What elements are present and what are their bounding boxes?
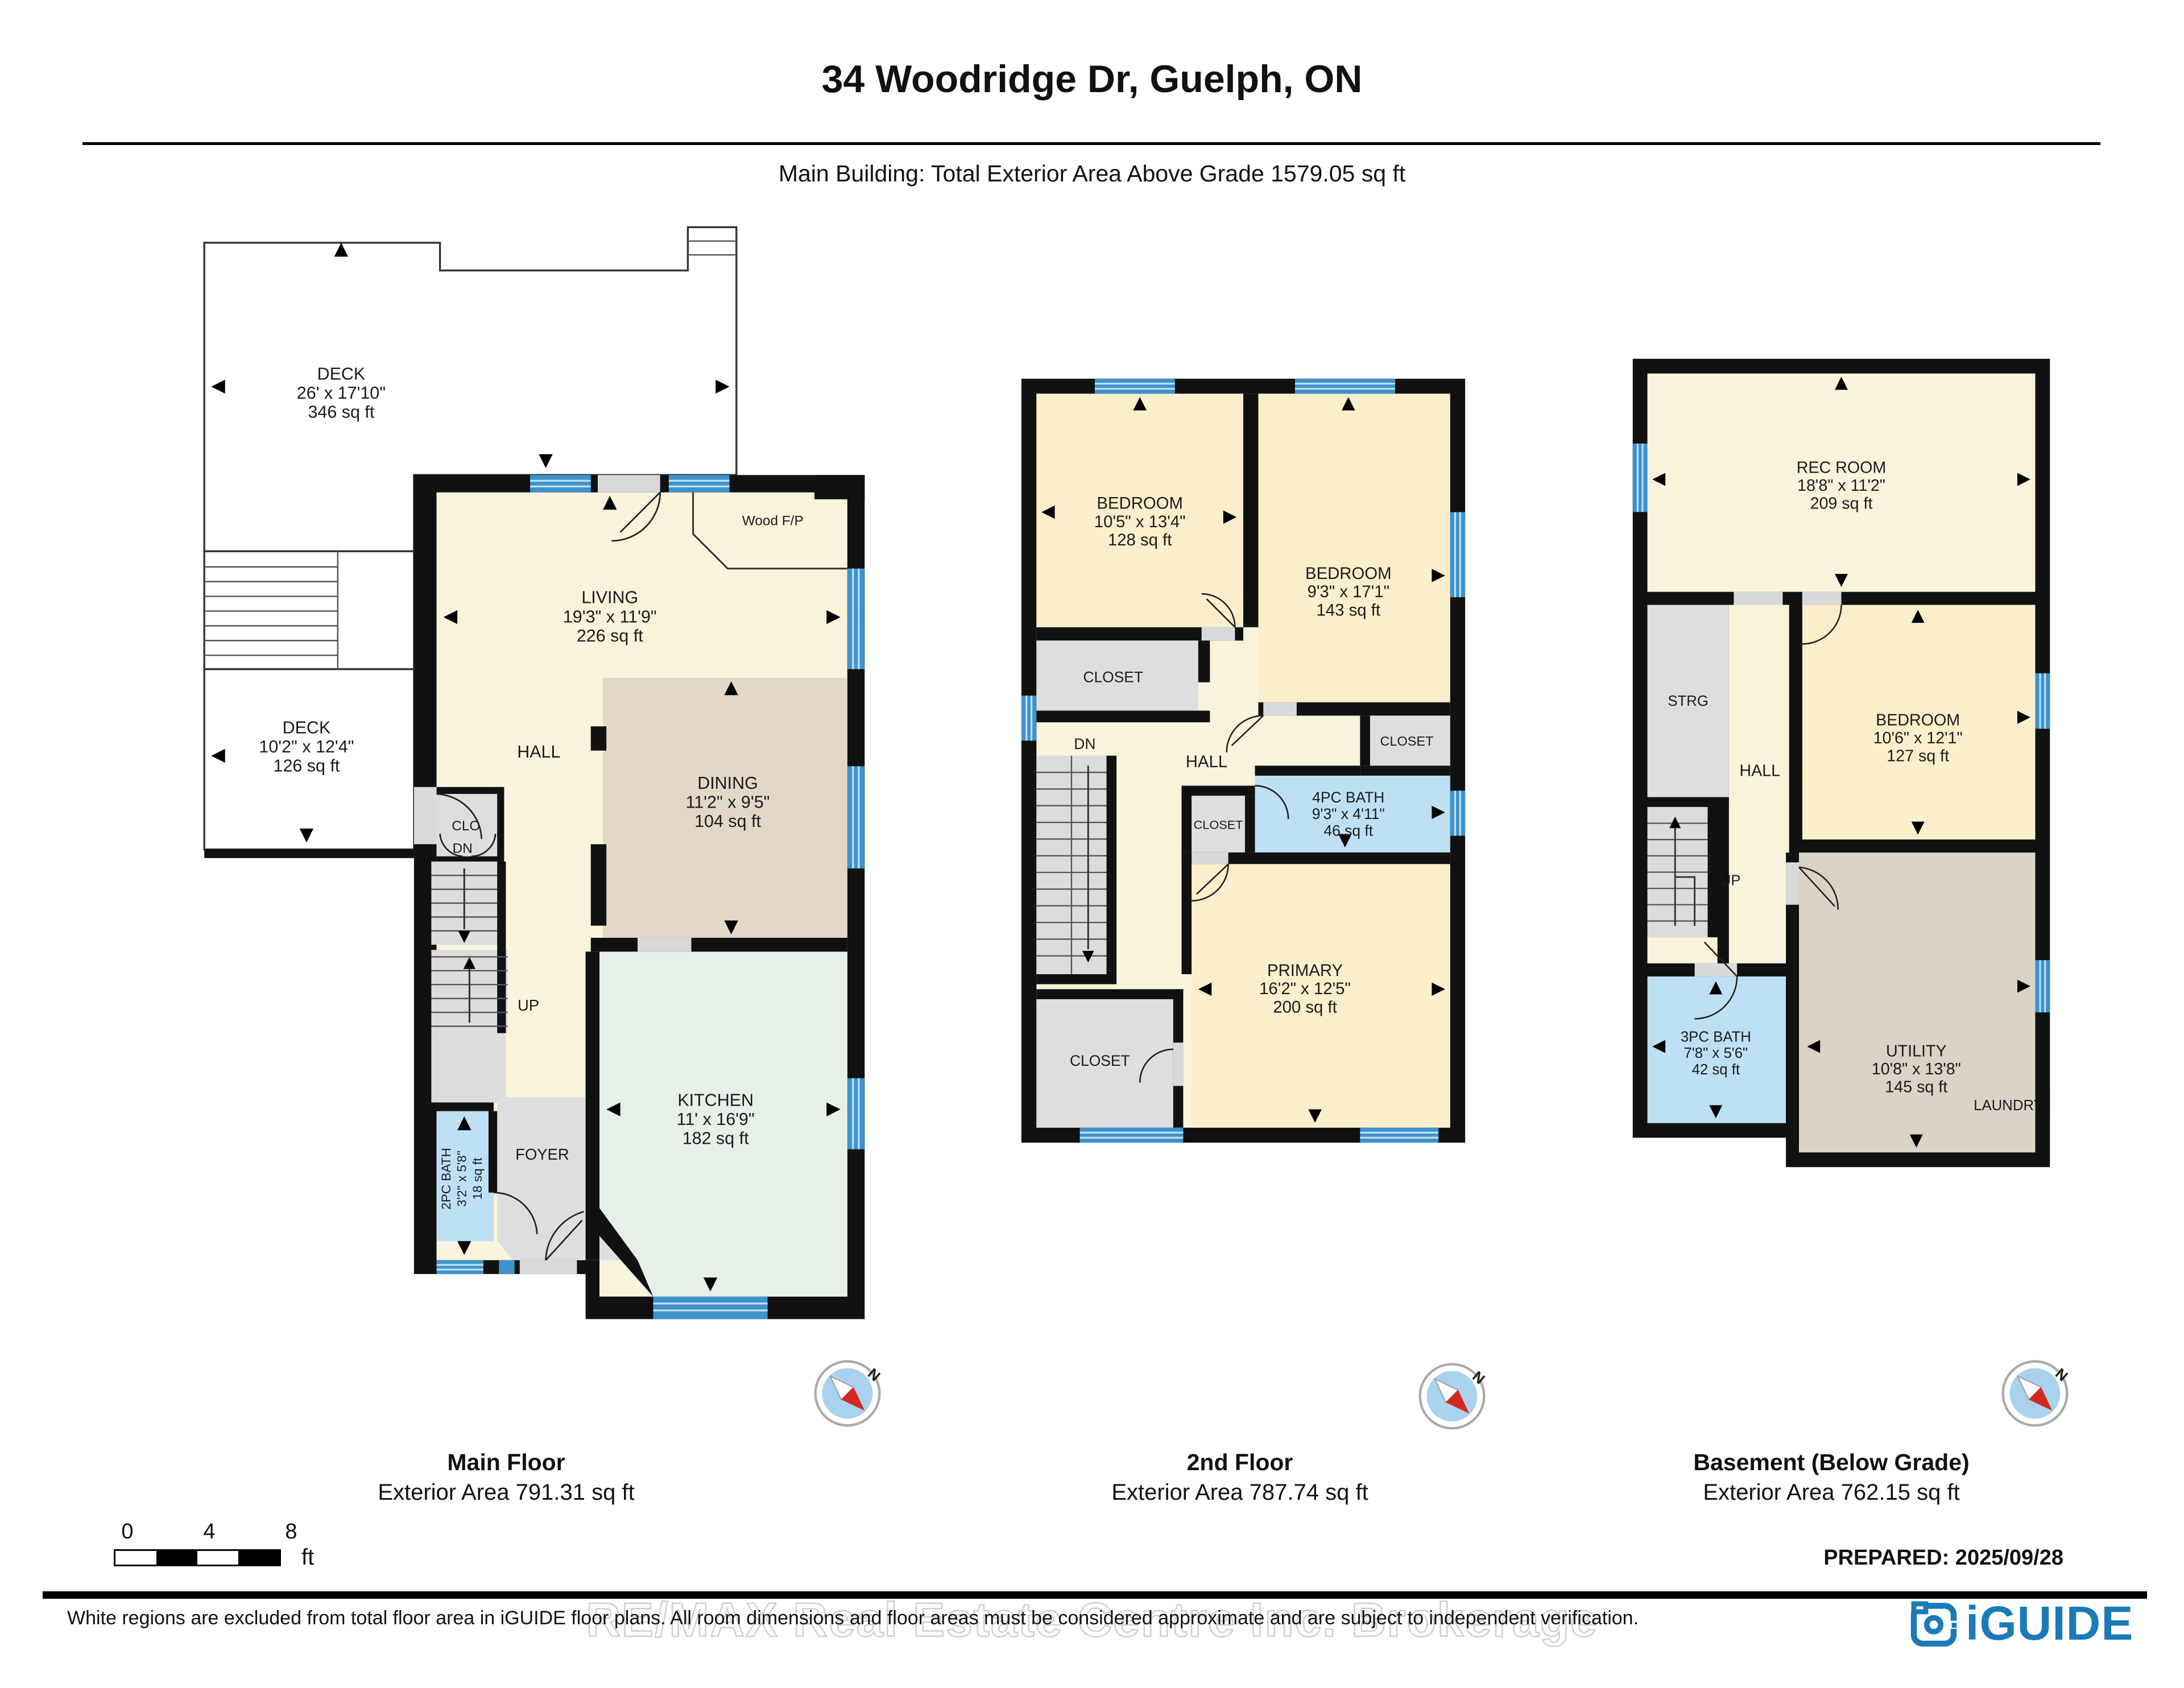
room-dims: 3'2" x 5'8" <box>454 1151 469 1207</box>
room-area: 128 sq ft <box>1108 531 1172 549</box>
scale-bar: 0 4 8 ft <box>114 1520 281 1566</box>
room-label: BEDROOM <box>1305 564 1391 583</box>
room-area: 127 sq ft <box>1887 747 1949 766</box>
room-dims: 11' x 16'9" <box>677 1110 755 1129</box>
room-area: 346 sq ft <box>308 403 374 422</box>
basement-area: Exterior Area 762.15 sq ft <box>1703 1480 1959 1505</box>
scale-unit: ft <box>301 1545 314 1570</box>
scale-tick-0: 0 <box>121 1520 133 1544</box>
iguide-logo-text: iGUIDE <box>1966 1596 2133 1651</box>
room-label: DN <box>453 841 473 857</box>
room-dims: 9'3" x 4'11" <box>1312 805 1385 822</box>
compass-second-floor: N <box>1415 1359 1489 1433</box>
hall-area <box>1729 605 1789 963</box>
room-area: 104 sq ft <box>694 812 761 831</box>
room-label: 2PC BATH <box>439 1148 453 1210</box>
main-floor-label: Main Floor <box>447 1449 565 1476</box>
room-dims: 11'2" x 9'5" <box>686 792 770 812</box>
compass-basement: N <box>1998 1356 2072 1430</box>
room-label: UP <box>518 996 539 1014</box>
room-dims: 10'8" x 13'8" <box>1872 1060 1961 1078</box>
compass-main-floor: N <box>810 1356 884 1430</box>
room-label: CLOSET <box>1194 818 1243 832</box>
second-floor-area: Exterior Area 787.74 sq ft <box>1111 1480 1368 1505</box>
iguide-camera-icon <box>1910 1600 1958 1648</box>
room-area: 209 sq ft <box>1810 495 1873 513</box>
scale-bar-segments <box>114 1549 281 1566</box>
room-label: DN <box>1074 735 1095 752</box>
floorplan-page: { "header": { "title": "34 Woodridge Dr,… <box>0 0 2184 1688</box>
room-label: CLOSET <box>1083 669 1143 686</box>
room-dims: 10'5" x 13'4" <box>1094 512 1186 531</box>
basement-plan: REC ROOM 18'8" x 11'2" 209 sq ft STRG HA… <box>1629 355 2053 1170</box>
footer-disclaimer: White regions are excluded from total fl… <box>67 1607 1639 1629</box>
room-label: DECK <box>317 365 366 384</box>
room-label: DINING <box>697 773 758 793</box>
room-dims: 16'2" x 12'5" <box>1259 979 1351 998</box>
room-dims: 26' x 17'10" <box>297 383 386 403</box>
page-title: 34 Woodridge Dr, Guelph, ON <box>822 57 1363 101</box>
room-label: CLOSET <box>1070 1052 1130 1069</box>
room-label: CLOSET <box>1380 734 1434 748</box>
room-label: 3PC BATH <box>1681 1029 1751 1045</box>
title-divider <box>82 142 2100 145</box>
room-area: 226 sq ft <box>577 626 643 646</box>
room-label: 4PC BATH <box>1312 789 1384 806</box>
room-label: HALL <box>1739 762 1780 780</box>
room-label: LAUNDRY <box>1974 1098 2044 1114</box>
second-floor-label: 2nd Floor <box>1187 1449 1293 1476</box>
room-area: 143 sq ft <box>1317 601 1380 619</box>
room-label: PRIMARY <box>1267 961 1343 980</box>
room-label: HALL <box>517 742 560 762</box>
room-area: 46 sq ft <box>1324 822 1374 839</box>
room-label: UP <box>1720 872 1741 888</box>
room-dims: 7'8" x 5'6" <box>1684 1045 1748 1061</box>
scale-tick-8: 8 <box>285 1520 297 1544</box>
room-area: 182 sq ft <box>682 1129 749 1148</box>
room-label: LIVING <box>581 588 638 607</box>
room-label: DECK <box>283 718 331 737</box>
main-floor-area: Exterior Area 791.31 sq ft <box>378 1480 634 1505</box>
second-floor-plan: BEDROOM 10'5" x 13'4" 128 sq ft BEDROOM … <box>1018 375 1469 1146</box>
room-label: HALL <box>1186 752 1227 771</box>
main-floor-plan: DECK 26' x 17'10" 346 sq ft DECK 10'2" x… <box>199 222 927 1331</box>
room-dims: 18'8" x 11'2" <box>1797 477 1885 495</box>
room-area: 145 sq ft <box>1885 1078 1947 1096</box>
room-dims: 9'3" x 17'1" <box>1308 582 1389 601</box>
room-area: 42 sq ft <box>1692 1062 1740 1078</box>
room-label: BEDROOM <box>1876 711 1960 730</box>
room-label: FOYER <box>515 1145 569 1163</box>
room-area: 200 sq ft <box>1273 998 1337 1016</box>
iguide-logo: iGUIDE <box>1910 1596 2133 1651</box>
room-label: KITCHEN <box>677 1091 754 1110</box>
room-area: 126 sq ft <box>274 756 340 775</box>
room-label: UTILITY <box>1886 1042 1947 1060</box>
bedroom-right-area <box>1258 394 1450 702</box>
room-label: Wood F/P <box>742 514 804 529</box>
room-label: BEDROOM <box>1097 494 1182 513</box>
page-subtitle: Main Building: Total Exterior Area Above… <box>779 160 1405 187</box>
room-area: 18 sq ft <box>470 1157 485 1200</box>
scale-tick-4: 4 <box>203 1520 215 1544</box>
room-label: REC ROOM <box>1797 458 1887 477</box>
room-label: CLO <box>452 818 480 834</box>
prepared-date: PREPARED: 2025/09/28 <box>1823 1546 2063 1570</box>
room-dims: 19'3" x 11'9" <box>563 607 657 626</box>
room-label: STRG <box>1668 693 1709 709</box>
room-dims: 10'6" x 12'1" <box>1873 729 1963 747</box>
room-dims: 10'2" x 12'4" <box>259 737 354 756</box>
basement-label: Basement (Below Grade) <box>1693 1449 1969 1476</box>
